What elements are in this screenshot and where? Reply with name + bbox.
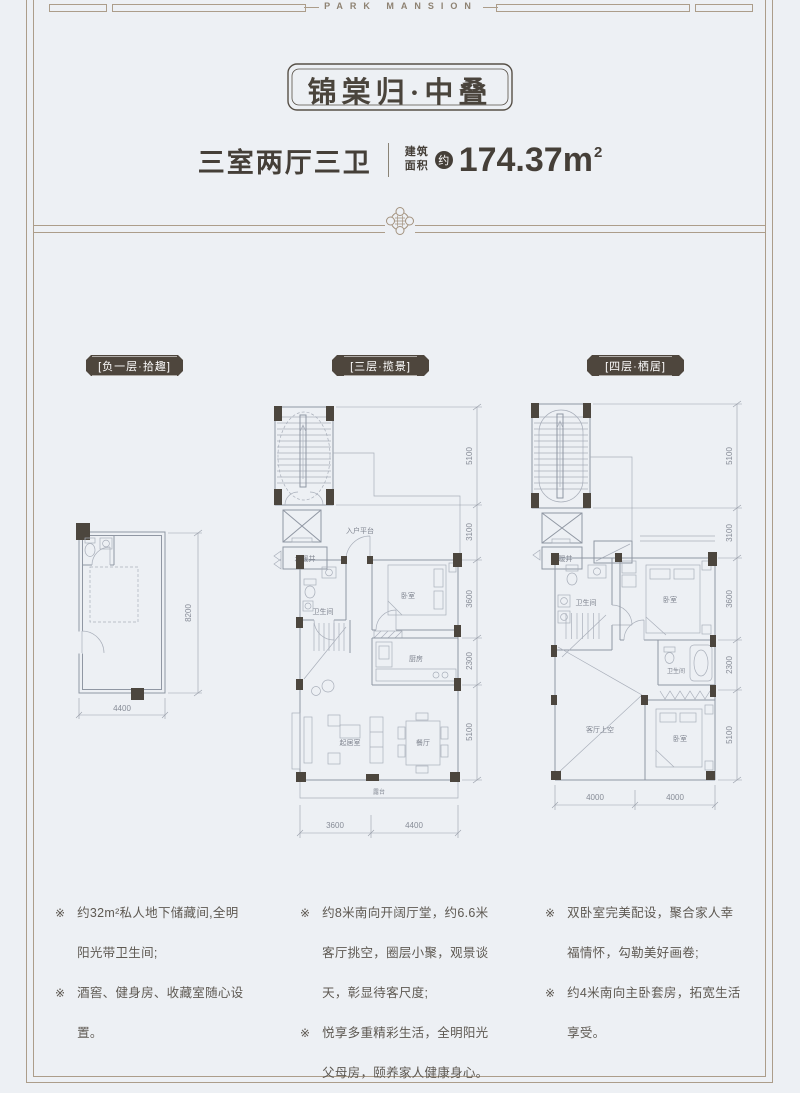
dim: 3100 xyxy=(725,524,734,542)
dim-bottom: 4400 xyxy=(76,698,168,719)
entry-door-arc xyxy=(82,631,104,653)
dim: 3600 xyxy=(326,821,344,830)
area-exponent: 2 xyxy=(594,144,602,161)
badge-fourth-label: [四层·栖居] xyxy=(599,356,672,376)
bathroom-2: 卫生间 xyxy=(658,640,715,685)
dim: 5100 xyxy=(465,447,474,465)
notes-column-fourth: ※ 双卧室完美配设，聚合家人幸福情怀，勾勒美好画卷; ※ 约4米南向主卧套房，拓… xyxy=(545,893,743,1053)
entry-parapet xyxy=(333,453,460,555)
dim: 3100 xyxy=(465,523,474,541)
floor-plan-fourth: 水暖井 卫生间 卧室 xyxy=(520,395,765,820)
dim: 5100 xyxy=(725,726,734,744)
notes-column-third: ※ 约8米南向开阔厅堂，约6.6米客厅挑空，圈层小聚，观景谈天，彰显待客尺度; … xyxy=(300,893,498,1093)
label-entry-platform: 入户平台 xyxy=(346,526,374,535)
kitchen: 厨房 xyxy=(372,638,458,685)
entry-parapet xyxy=(590,457,632,541)
floor-plan-third: 水暖井 入户平台 卫生间 卧室 xyxy=(270,395,505,845)
column xyxy=(131,688,144,700)
label-bedroom: 卧室 xyxy=(401,591,415,600)
dim: 5100 xyxy=(465,723,474,741)
label-bedroom-1: 卧室 xyxy=(663,595,677,604)
dims-bottom: 4000 4000 xyxy=(552,785,718,810)
dims-right: 5100 3100 3600 2300 5100 xyxy=(593,401,742,783)
area-value: 174.37m2 xyxy=(459,141,603,180)
dim: 2300 xyxy=(725,656,734,674)
note-item: ※ 约8米南向开阔厅堂，约6.6米客厅挑空，圈层小聚，观景谈天，彰显待客尺度; xyxy=(300,893,498,1013)
label-terrace: 露台 xyxy=(373,788,385,796)
notes-column-basement: ※ 约32m²私人地下储藏间,全明阳光带卫生间; ※ 酒窖、健身房、收藏室随心设… xyxy=(55,893,250,1053)
badge-third-floor: [三层·揽景] xyxy=(332,355,429,376)
note-marker: ※ xyxy=(55,893,65,933)
note-text: 双卧室完美配设，聚合家人幸福情怀，勾勒美好画卷; xyxy=(567,893,743,973)
dining-room: 餐厅 xyxy=(398,713,448,773)
badge-basement-label: [负一层·拾趣] xyxy=(92,356,177,376)
living-room: 起居室 xyxy=(292,713,383,769)
top-decorative-bar: PARK MANSION xyxy=(49,3,753,15)
subtitle-row: 三室两厅三卫 建筑 面积 约 174.37m2 xyxy=(0,136,800,184)
stairwell xyxy=(274,406,334,505)
unit-entry-door xyxy=(346,536,370,560)
note-marker: ※ xyxy=(55,973,65,1013)
deco-bar-long-right xyxy=(496,4,690,12)
area-label-line1: 建筑 xyxy=(405,146,429,158)
note-marker: ※ xyxy=(545,893,555,933)
label-bathroom: 卫生间 xyxy=(313,607,334,616)
dim: 4000 xyxy=(666,793,684,802)
label-dining: 餐厅 xyxy=(416,738,430,747)
note-item: ※ 酒窖、健身房、收藏室随心设置。 xyxy=(55,973,250,1053)
elevator xyxy=(542,513,582,543)
note-item: ※ 悦享多重精彩生活，全明阳光父母房，颐养家人健康身心。 xyxy=(300,1013,498,1093)
note-text: 约32m²私人地下储藏间,全明阳光带卫生间; xyxy=(77,893,250,973)
dim: 3600 xyxy=(465,590,474,608)
dim: 4400 xyxy=(405,821,423,830)
dim-right: 8200 xyxy=(168,530,202,696)
stairwell xyxy=(531,403,591,508)
dim: 4000 xyxy=(586,793,604,802)
badge-fourth-floor: [四层·栖居] xyxy=(587,355,684,376)
area-group: 建筑 面积 约 174.37m2 xyxy=(405,141,603,180)
terrace: 露台 xyxy=(300,780,458,798)
subtitle-divider xyxy=(388,143,389,177)
label-void: 客厅上空 xyxy=(586,725,614,734)
note-item: ※ 约4米南向主卧套房，拓宽生活享受。 xyxy=(545,973,743,1053)
note-text: 约4米南向主卧套房，拓宽生活享受。 xyxy=(567,973,743,1053)
badge-basement-floor: [负一层·拾趣] xyxy=(86,355,183,376)
note-text: 悦享多重精彩生活，全明阳光父母房，颐养家人健康身心。 xyxy=(322,1013,498,1093)
storage-area xyxy=(90,567,138,622)
label-bathroom-1: 卫生间 xyxy=(576,598,597,607)
note-item: ※ 双卧室完美配设，聚合家人幸福情怀，勾勒美好画卷; xyxy=(545,893,743,973)
label-kitchen: 厨房 xyxy=(409,654,423,663)
dim: 2300 xyxy=(465,652,474,670)
dim: 5100 xyxy=(725,447,734,465)
seal-medallion xyxy=(385,206,415,236)
bedroom-2: 卧室 xyxy=(645,700,715,780)
columns xyxy=(551,552,717,780)
area-label: 建筑 面积 xyxy=(405,146,429,174)
area-label-line2: 面积 xyxy=(405,160,429,172)
interior-stair xyxy=(304,620,350,696)
approx-badge: 约 xyxy=(435,151,453,169)
column xyxy=(76,523,90,540)
louver-hatch xyxy=(660,691,710,699)
area-number: 174.37m xyxy=(459,141,593,179)
note-marker: ※ xyxy=(545,973,555,1013)
note-text: 约8米南向开阔厅堂，约6.6米客厅挑空，圈层小聚，观景谈天，彰显待客尺度; xyxy=(322,893,498,1013)
label-bedroom-2: 卧室 xyxy=(673,734,687,743)
bedroom: 卧室 xyxy=(372,560,458,630)
note-text: 酒窖、健身房、收藏室随心设置。 xyxy=(77,973,250,1053)
hatch-strip xyxy=(374,631,402,638)
high-window xyxy=(640,536,715,541)
dim-8200: 8200 xyxy=(184,604,193,622)
unit-walls xyxy=(555,558,715,780)
living-void: 客厅上空 xyxy=(558,647,642,773)
dim: 3600 xyxy=(725,590,734,608)
note-marker: ※ xyxy=(300,1013,310,1053)
note-marker: ※ xyxy=(300,893,310,933)
floor-plan-basement: 8200 4400 xyxy=(60,500,250,730)
elevator xyxy=(283,510,321,542)
dims-bottom: 3600 4400 xyxy=(297,805,461,838)
label-bathroom-2: 卫生间 xyxy=(667,667,685,675)
deco-bar-small-right xyxy=(695,4,753,12)
badge-third-label: [三层·揽景] xyxy=(344,356,417,376)
title-plaque: 锦棠归·中叠 xyxy=(285,61,515,113)
flue-box xyxy=(594,541,632,563)
bedroom-1: 卧室 xyxy=(620,558,715,640)
note-item: ※ 约32m²私人地下储藏间,全明阳光带卫生间; xyxy=(55,893,250,973)
dim-4400: 4400 xyxy=(113,704,131,713)
page-title: 锦棠归·中叠 xyxy=(285,69,515,111)
label-living: 起居室 xyxy=(340,738,361,747)
room-spec: 三室两厅三卫 xyxy=(198,141,372,180)
